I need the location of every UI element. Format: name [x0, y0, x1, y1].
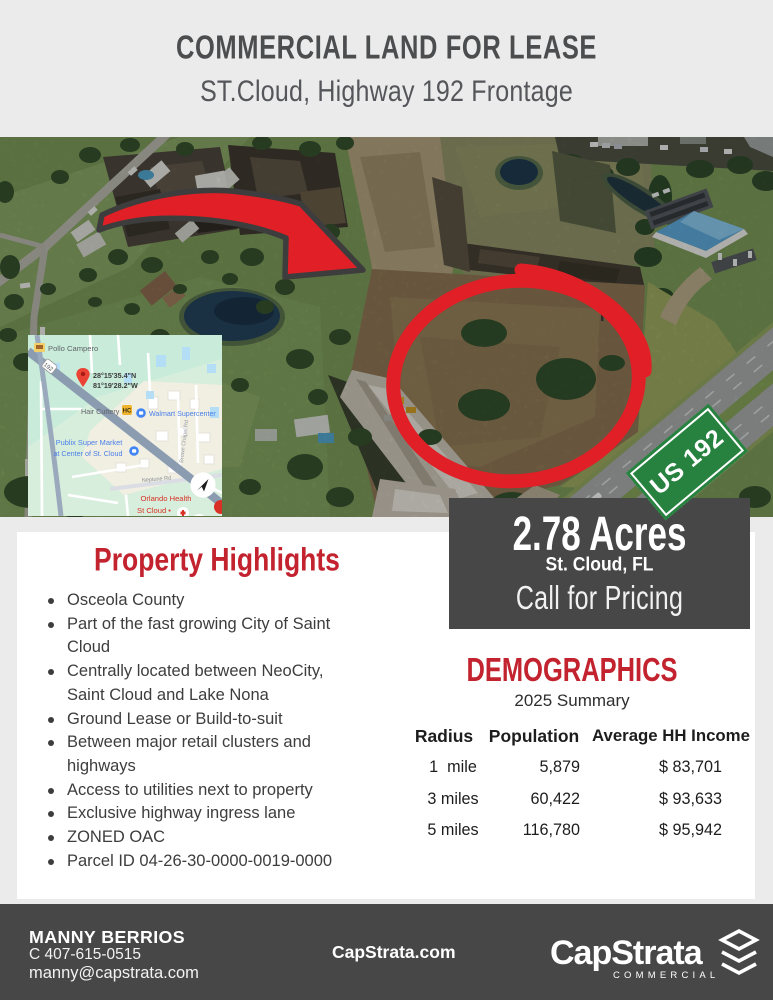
svg-text:Publix Super Market: Publix Super Market — [56, 438, 123, 447]
svg-text:Pollo Campero: Pollo Campero — [48, 344, 98, 353]
svg-text:Orlando Health: Orlando Health — [140, 494, 191, 503]
svg-text:Walmart Supercenter: Walmart Supercenter — [149, 410, 216, 418]
svg-text:COMMERCIAL: COMMERCIAL — [613, 970, 719, 981]
svg-text:CapStrata: CapStrata — [550, 934, 704, 972]
svg-text:81°19'28.2"W: 81°19'28.2"W — [93, 381, 138, 390]
svg-text:28°15'35.4"N: 28°15'35.4"N — [93, 371, 136, 380]
svg-text:at Center of St. Cloud: at Center of St. Cloud — [53, 449, 122, 458]
svg-text:HC: HC — [123, 409, 132, 415]
svg-text:St Cloud •: St Cloud • — [137, 506, 171, 515]
svg-text:Hair Cuttery: Hair Cuttery — [81, 407, 120, 416]
